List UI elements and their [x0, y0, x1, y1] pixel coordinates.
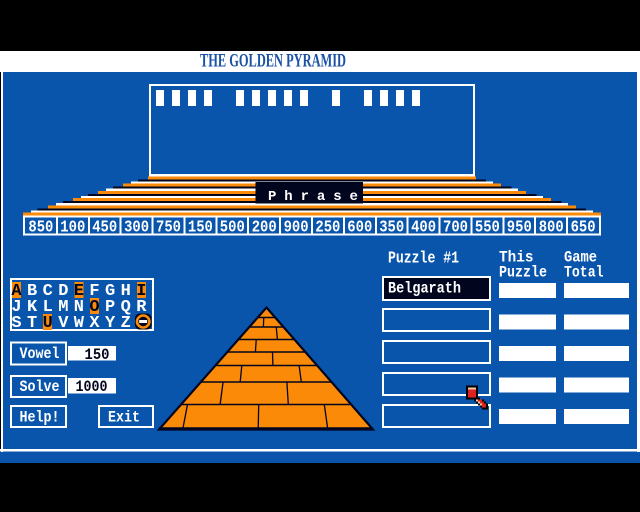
svg-text:THE GOLDEN PYRAMID: THE GOLDEN PYRAMID [200, 51, 346, 72]
svg-text:Puzzle #1: Puzzle #1 [388, 249, 459, 268]
svg-text:1000: 1000 [76, 378, 108, 396]
svg-text:350: 350 [379, 219, 404, 238]
svg-text:300: 300 [124, 219, 149, 238]
svg-text:W: W [74, 314, 85, 333]
svg-text:Solve: Solve [20, 378, 60, 396]
svg-text:Belgarath: Belgarath [388, 280, 461, 298]
svg-text:850: 850 [28, 219, 53, 238]
svg-text:150: 150 [85, 346, 110, 364]
svg-text:650: 650 [571, 219, 596, 238]
svg-text:U: U [43, 314, 53, 333]
svg-text:T: T [27, 314, 37, 333]
svg-text:150: 150 [188, 219, 213, 238]
svg-text:Puzzle: Puzzle [499, 264, 547, 282]
svg-text:Vowel: Vowel [20, 345, 60, 363]
svg-text:450: 450 [92, 219, 117, 238]
svg-text:550: 550 [475, 219, 500, 238]
svg-text:Y: Y [105, 314, 116, 333]
svg-text:Exit: Exit [108, 409, 140, 427]
svg-text:950: 950 [507, 219, 532, 238]
svg-text:700: 700 [443, 219, 468, 238]
svg-text:Total: Total [564, 264, 604, 282]
svg-text:Help!: Help! [20, 409, 60, 427]
svg-text:600: 600 [347, 219, 372, 238]
svg-text:S: S [11, 314, 21, 333]
svg-text:100: 100 [60, 219, 85, 238]
svg-text:200: 200 [252, 219, 277, 238]
svg-text:250: 250 [315, 219, 340, 238]
svg-text:800: 800 [539, 219, 564, 238]
svg-text:X: X [89, 314, 100, 333]
svg-text:400: 400 [411, 219, 436, 238]
svg-text:900: 900 [284, 219, 309, 238]
svg-text:500: 500 [220, 219, 245, 238]
svg-text:750: 750 [156, 219, 181, 238]
svg-text:V: V [58, 314, 69, 333]
svg-text:Z: Z [121, 314, 131, 333]
